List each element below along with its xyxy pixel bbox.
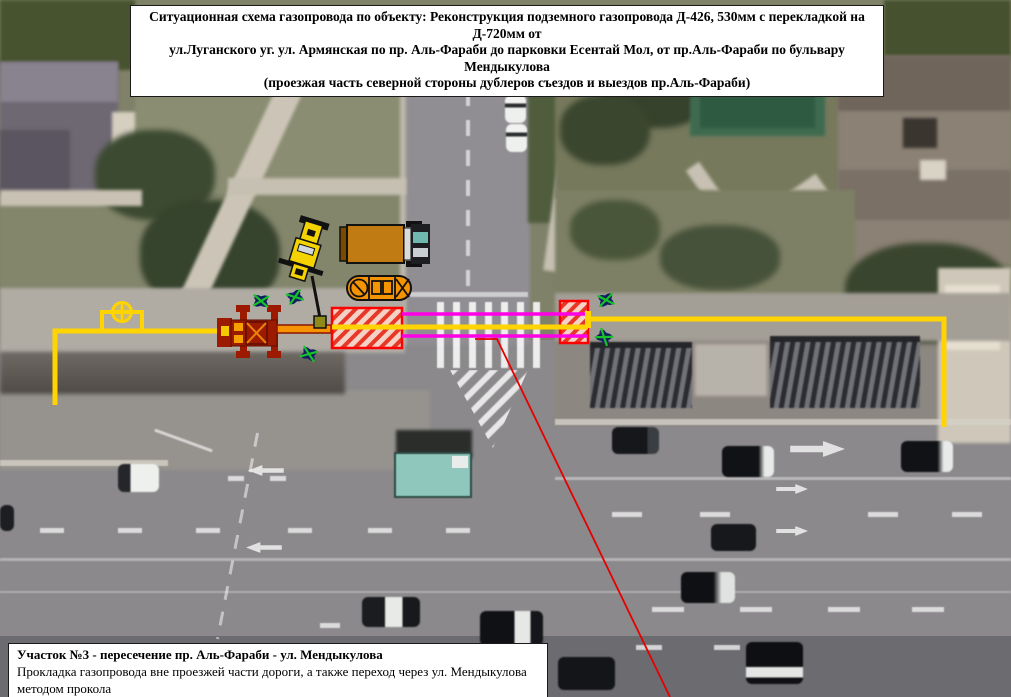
satellite-building-topright-white [920,160,946,180]
lane-dash [740,607,772,612]
section-description: Прокладка газопровода вне проезжей части… [17,663,539,697]
satellite-building-topleft-roof [0,62,118,102]
lane-dash [196,528,220,533]
railing-structure-left [590,342,692,408]
lane-line-solid-2 [0,558,1011,561]
satellite-curb-shadow-west [0,352,345,394]
car [505,95,526,123]
lane-dash [868,512,898,517]
satellite-trees-blob-6 [660,225,780,290]
lane-dash [270,476,286,481]
lane-dash [118,528,142,533]
car [681,572,735,603]
satellite-merge-left [0,390,430,470]
curb-line-ramp-right [555,419,1011,425]
lane-line-solid-1 [555,477,1011,480]
car [711,524,756,551]
bus-shelter-detail [452,456,468,468]
satellite-pavement-west [0,288,405,353]
car [612,427,659,454]
satellite-trees-topright [884,0,1011,60]
lane-dash [714,645,740,650]
lane-dash [446,528,470,533]
car [901,441,953,472]
section-title: Участок №3 - пересечение пр. Аль-Фараби … [17,646,539,663]
car [722,446,774,477]
satellite-trees-topleft [0,0,135,70]
lane-dash [828,607,860,612]
car [558,657,615,690]
zebra-crosswalk [437,302,547,368]
satellite-building-topleft-wing [0,130,70,195]
lane-line-solid-3 [0,591,1011,593]
stop-line [410,292,528,297]
lane-dash [288,528,312,533]
title-line-3: (проезжая часть северной стороны дублеро… [137,75,877,92]
satellite-building-topright-court [903,118,937,148]
lane-dash [612,512,642,517]
car [746,642,803,684]
section-info-box: Участок №3 - пересечение пр. Аль-Фараби … [8,643,548,697]
lane-dash [320,623,340,628]
lane-dash [368,528,392,533]
satellite-trees-blob-5 [570,200,660,260]
title-line-2: ул.Луганского уг. ул. Армянская по пр. А… [137,42,877,75]
railing-gap-pavement [695,344,767,396]
scheme-title-box: Ситуационная схема газопровода по объект… [130,5,884,97]
car [118,464,159,492]
lane-dash [912,607,944,612]
satellite-trees-blob-4 [560,95,650,165]
car [0,505,14,531]
situational-scheme-canvas: Ситуационная схема газопровода по объект… [0,0,1011,697]
lane-dash [652,607,684,612]
car [362,597,420,627]
lane-dash [952,512,982,517]
lane-dash [228,476,244,481]
title-line-1: Ситуационная схема газопровода по объект… [137,9,877,42]
car [506,124,527,152]
lane-dash [40,528,64,533]
lane-dash [700,512,730,517]
lane-dash [636,645,662,650]
railing-structure-right [770,336,920,408]
satellite-pavement-northeast [555,293,1011,341]
car [480,611,543,646]
satellite-sidewalk-west-band [228,178,406,195]
satellite-path-horizontal-left [0,190,142,206]
